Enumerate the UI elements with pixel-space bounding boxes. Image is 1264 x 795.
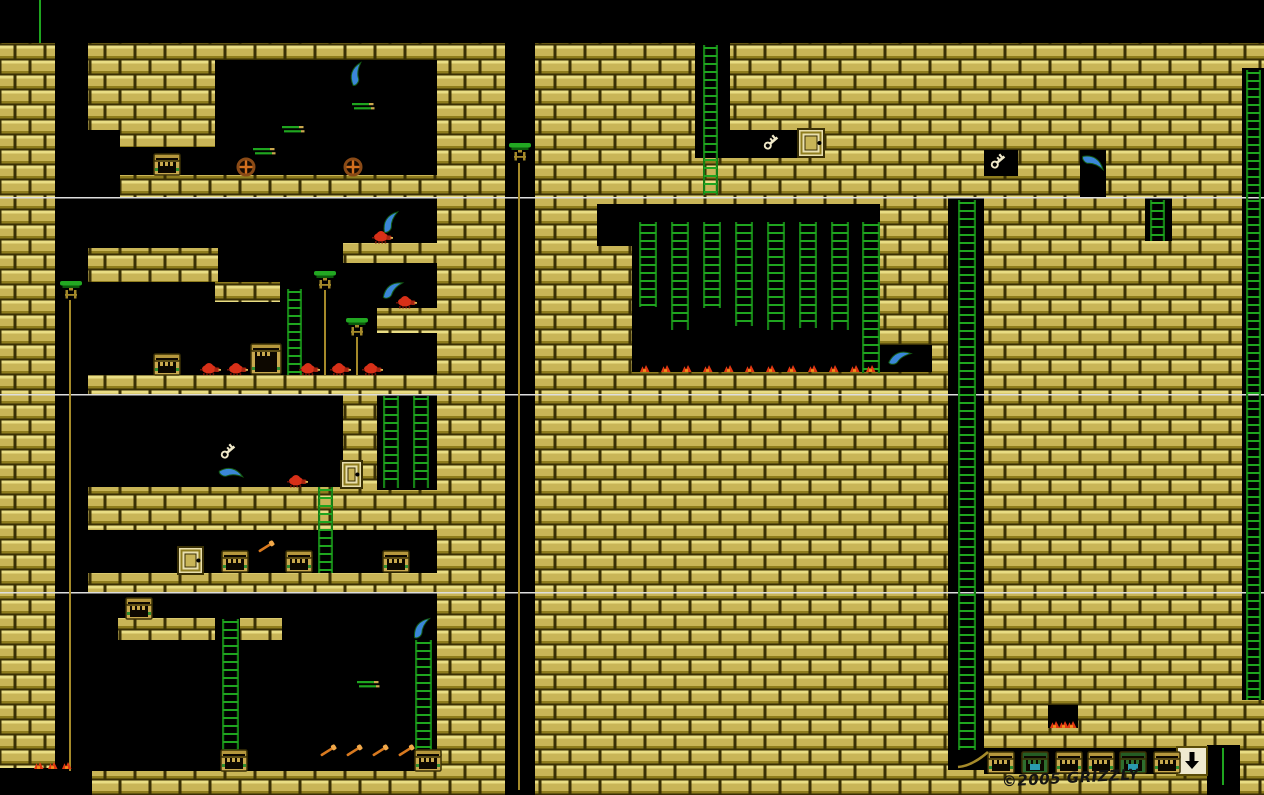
door — [341, 461, 362, 488]
pole — [518, 163, 520, 790]
rope — [1222, 748, 1224, 785]
treasure-chest — [415, 750, 441, 771]
green-chest — [1022, 752, 1048, 773]
screen-divider — [0, 592, 1264, 594]
green-chest — [1120, 752, 1146, 773]
level-map-canvas — [0, 0, 1264, 795]
door — [178, 547, 203, 574]
black-room — [878, 345, 932, 372]
treasure-chest — [1088, 752, 1114, 773]
treasure-chest — [1056, 752, 1082, 773]
wheel-item — [238, 159, 254, 175]
treasure-chest — [1154, 752, 1180, 773]
brick-platform — [215, 282, 280, 302]
black-room — [55, 43, 88, 771]
treasure-chest — [222, 551, 248, 572]
big-chest — [251, 344, 281, 374]
rope — [39, 0, 41, 43]
pole — [324, 290, 326, 375]
pole — [356, 337, 358, 375]
black-room — [597, 204, 632, 246]
brick-platform — [240, 618, 282, 640]
brick-platform — [377, 308, 437, 333]
screen-divider — [0, 197, 1264, 199]
black-room — [215, 60, 437, 175]
treasure-chest — [988, 752, 1014, 773]
treasure-chest — [286, 551, 312, 572]
black-room — [88, 130, 120, 197]
brick-platform — [343, 243, 437, 263]
black-room — [88, 394, 343, 487]
brick-platform — [88, 248, 218, 282]
black-room — [695, 43, 730, 158]
level-map: ©2005 GRIZZLY — [0, 0, 1264, 795]
treasure-chest — [154, 354, 180, 375]
treasure-chest — [221, 750, 247, 771]
black-room — [0, 0, 1264, 43]
black-room — [984, 150, 1018, 176]
treasure-chest — [383, 551, 409, 572]
wheel-item — [345, 159, 361, 175]
screen-divider — [0, 394, 1264, 396]
ladder — [958, 200, 976, 750]
brick-platform — [118, 618, 215, 640]
exit-door — [1177, 747, 1207, 775]
black-room — [0, 768, 92, 795]
treasure-chest — [126, 598, 152, 619]
pole — [69, 300, 71, 771]
door — [798, 129, 824, 157]
treasure-chest — [154, 154, 180, 175]
